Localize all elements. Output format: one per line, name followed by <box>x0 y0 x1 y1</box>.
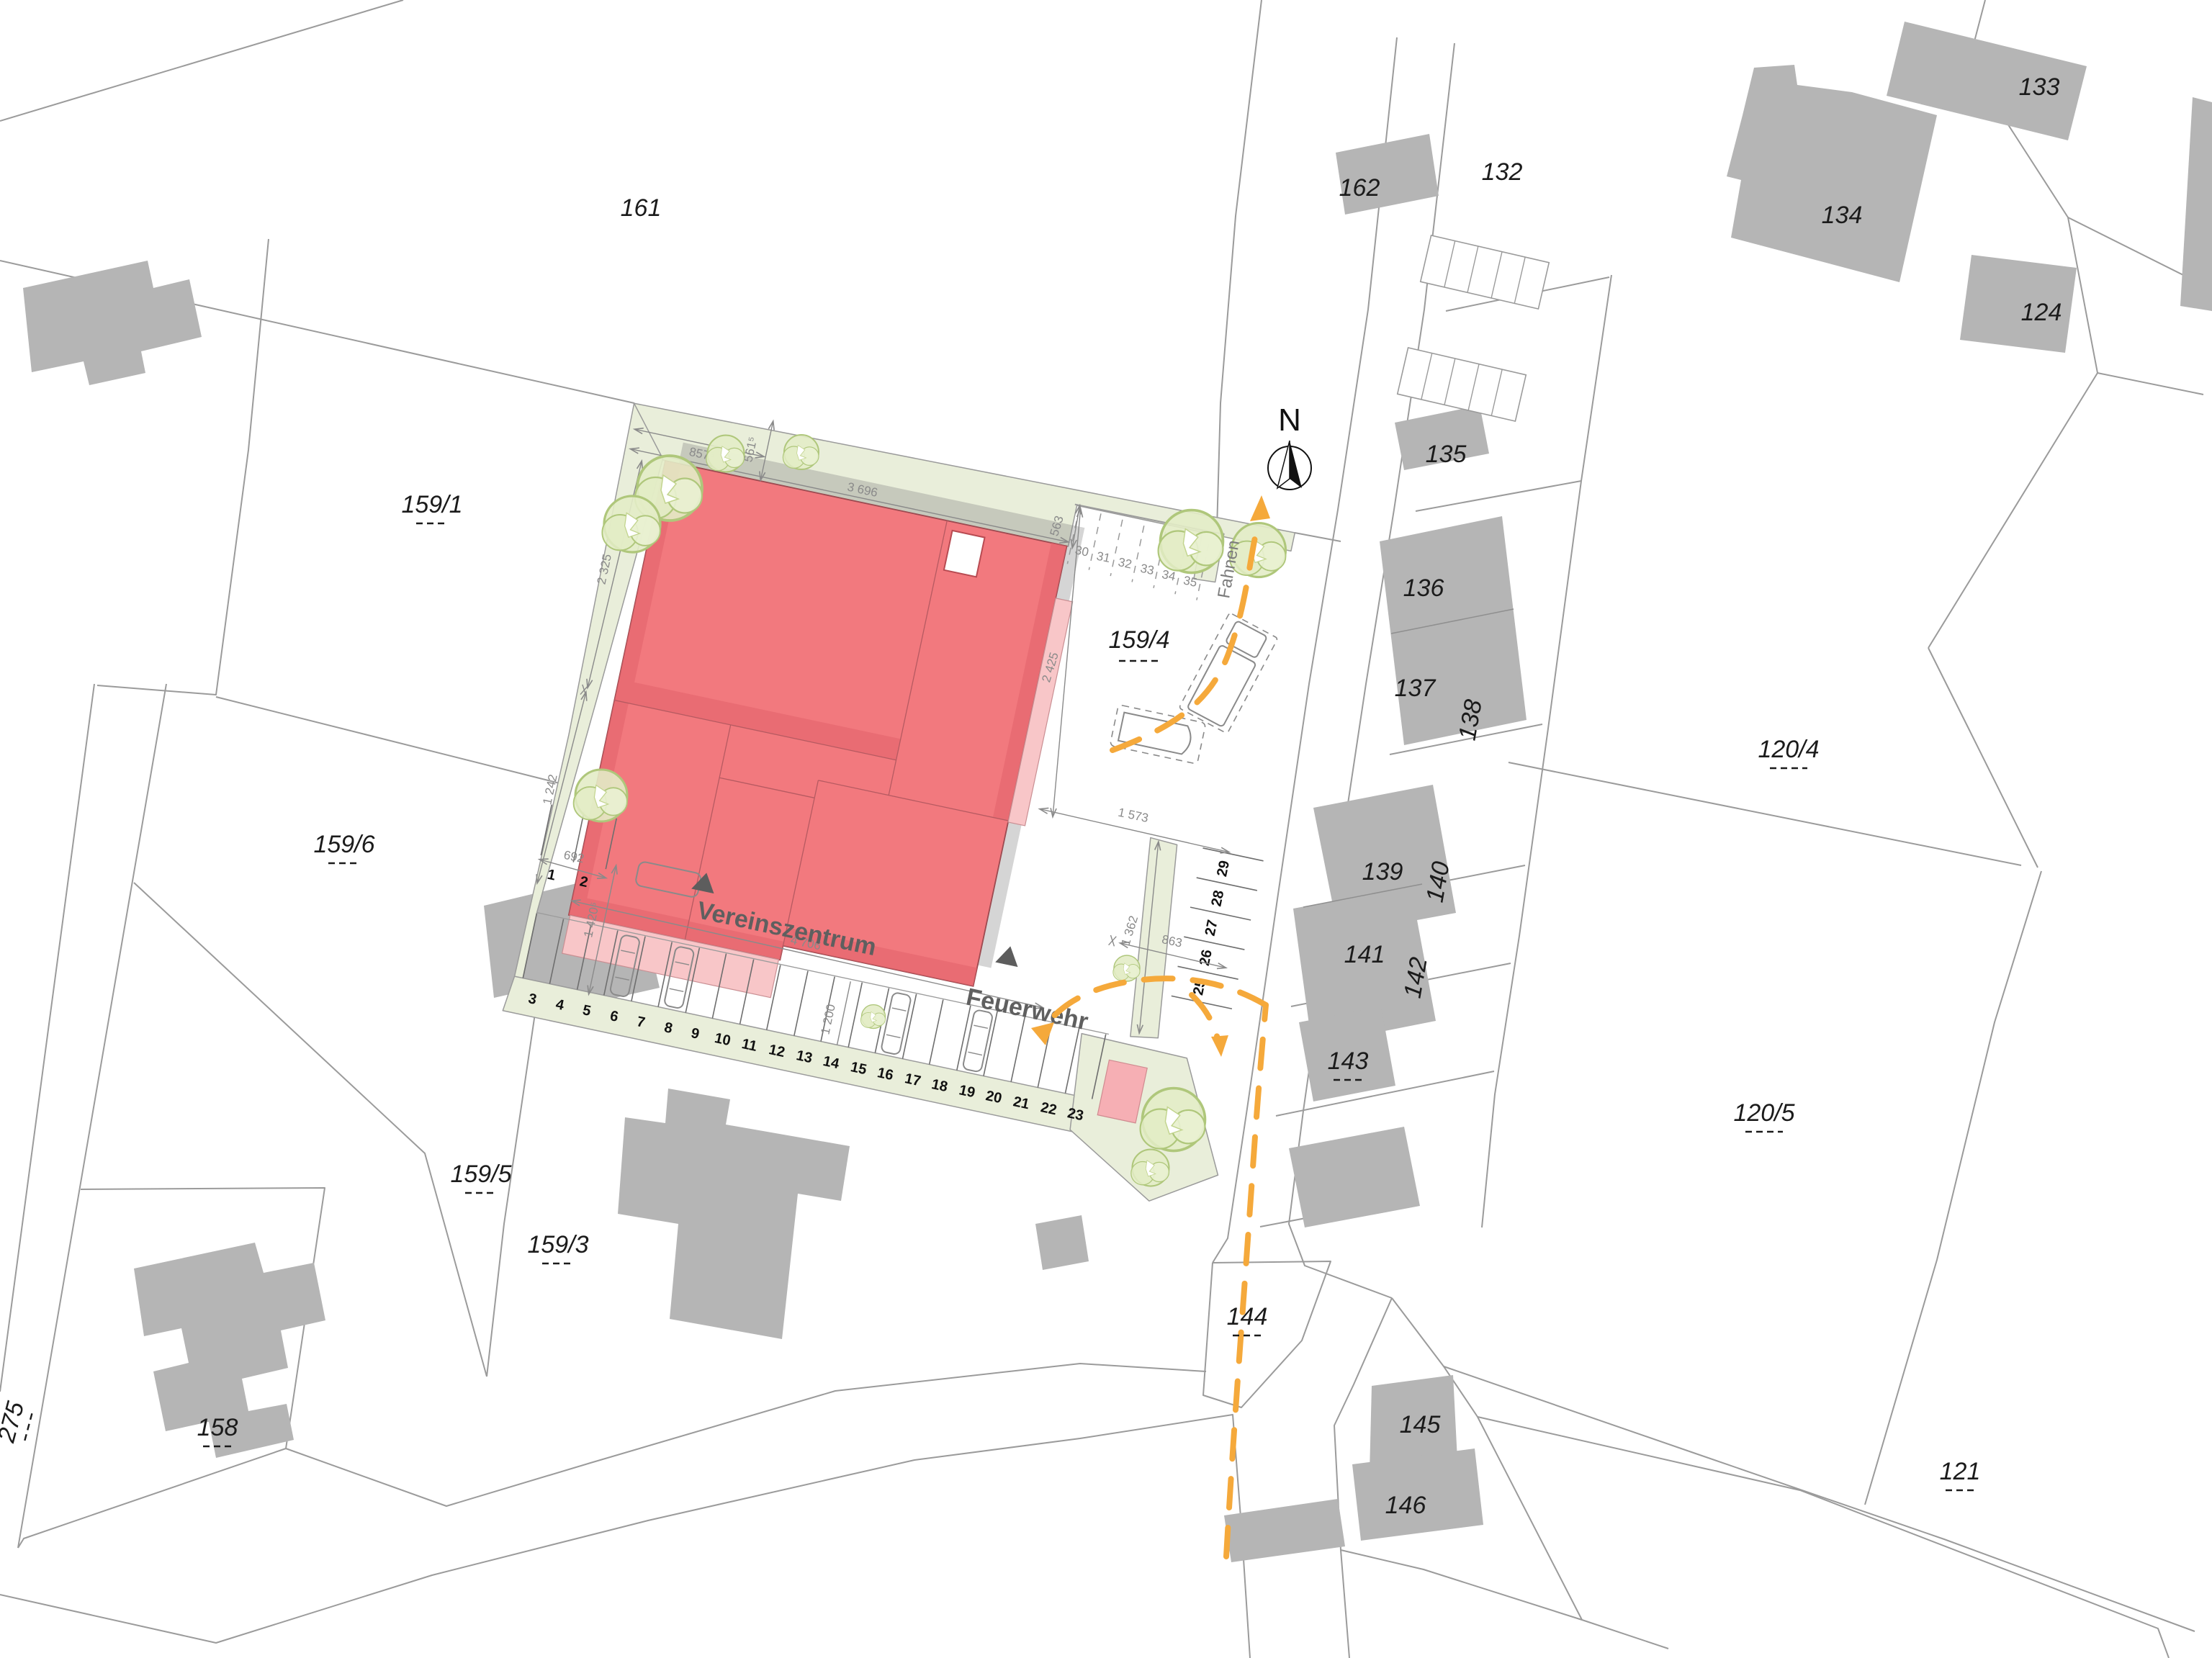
building-139-141 <box>1293 785 1456 1045</box>
stall-number: 11 <box>740 1036 758 1055</box>
existing-buildings <box>23 22 2212 1562</box>
parcel-label-137: 137 <box>1395 675 1437 702</box>
svg-text:137: 137 <box>1395 675 1437 702</box>
stall-number: 15 <box>849 1059 868 1078</box>
dim-label: 1 200 <box>818 1003 837 1036</box>
stall-number: 10 <box>713 1030 732 1049</box>
parcel-label-159-3: 159/3 <box>527 1231 588 1263</box>
svg-text:143: 143 <box>1328 1047 1369 1075</box>
parcel-label-133: 133 <box>2019 73 2060 101</box>
svg-text:161: 161 <box>621 194 662 222</box>
bus-outline <box>1110 705 1205 765</box>
parcel-label-124: 124 <box>2021 299 2062 326</box>
building-159-3 <box>618 1089 850 1339</box>
parcel-label-144: 144 <box>1227 1303 1268 1335</box>
svg-text:141: 141 <box>1344 941 1385 968</box>
truck-outline <box>1179 613 1278 734</box>
tree-icon <box>1159 510 1223 573</box>
svg-text:133: 133 <box>2019 73 2060 101</box>
svg-text:132: 132 <box>1482 158 1523 186</box>
svg-text:159/5: 159/5 <box>450 1161 511 1188</box>
stall-number: 29 <box>1214 859 1233 878</box>
parcel-label-121: 121 <box>1940 1458 1981 1490</box>
parcel-label-120-5: 120/5 <box>1733 1099 1794 1132</box>
parcel-label-141: 141 <box>1344 941 1385 968</box>
route-arrowhead-north <box>1250 495 1270 521</box>
entrance-arrow-feuerwehr <box>995 944 1022 967</box>
parcel-label-145: 145 <box>1400 1411 1441 1438</box>
stall-number: 20 <box>984 1088 1003 1107</box>
tree-icon <box>602 496 660 552</box>
stall-number: 28 <box>1208 889 1227 908</box>
stall-number: 31 <box>1095 549 1111 566</box>
svg-text:159/3: 159/3 <box>527 1231 588 1258</box>
building-161-west <box>23 261 202 385</box>
tree-icon <box>860 1005 885 1029</box>
parcel-label-275: 275 <box>0 1399 34 1447</box>
building-bottom-center <box>1224 1499 1345 1562</box>
stall-number: 35 <box>1182 573 1198 590</box>
tree-icon <box>1131 1150 1169 1186</box>
svg-text:135: 135 <box>1426 441 1467 468</box>
building-right-edge <box>2180 97 2212 311</box>
svg-text:162: 162 <box>1339 174 1380 202</box>
svg-text:120/4: 120/4 <box>1758 736 1819 763</box>
site-plan: 3 4 5 6 7 8 9 10 11 12 13 14 15 16 17 18… <box>0 0 2212 1658</box>
stall-number: 23 <box>1066 1105 1084 1124</box>
stall-number: 33 <box>1139 562 1155 578</box>
site-plan-canvas: 3 4 5 6 7 8 9 10 11 12 13 14 15 16 17 18… <box>0 0 2212 1658</box>
dim-label: 1 573 <box>1117 806 1150 825</box>
north-arrow: N <box>1268 402 1311 490</box>
parking-row-132-north <box>1421 235 1550 309</box>
parcel-label-161: 161 <box>621 194 662 222</box>
stall-number: 13 <box>795 1047 814 1066</box>
parcel-label-135: 135 <box>1426 441 1467 468</box>
building-below-143 <box>1289 1127 1420 1227</box>
svg-text:120/5: 120/5 <box>1733 1099 1794 1127</box>
parcel-label-132: 132 <box>1482 158 1523 186</box>
tree-icon <box>574 770 627 821</box>
parcel-label-159-4: 159/4 <box>1108 626 1169 661</box>
svg-text:121: 121 <box>1940 1458 1981 1485</box>
svg-text:158: 158 <box>197 1414 238 1441</box>
parcel-label-159-5: 159/5 <box>450 1161 511 1193</box>
car-icon <box>962 1009 993 1073</box>
svg-text:144: 144 <box>1227 1303 1268 1330</box>
parcel-label-159-6: 159/6 <box>313 831 374 863</box>
stall-number: 18 <box>930 1076 949 1095</box>
route-arrowhead-aisle <box>1031 1022 1054 1045</box>
parcel-label-159-1: 159/1 <box>401 491 462 523</box>
svg-text:159/1: 159/1 <box>401 491 462 518</box>
parcel-label-136: 136 <box>1403 575 1444 602</box>
stall-number: 27 <box>1202 919 1221 937</box>
tree-icon <box>1113 955 1140 981</box>
stall-number: 21 <box>1012 1094 1030 1112</box>
svg-text:159/4: 159/4 <box>1108 626 1169 654</box>
parcel-label-139: 139 <box>1362 858 1403 886</box>
svg-text:124: 124 <box>2021 299 2062 326</box>
parcel-label-162: 162 <box>1339 174 1380 202</box>
svg-text:134: 134 <box>1822 202 1863 229</box>
building-159-3-annex <box>1035 1215 1089 1270</box>
svg-text:145: 145 <box>1400 1411 1441 1438</box>
svg-text:139: 139 <box>1362 858 1403 886</box>
parcel-label-146: 146 <box>1385 1492 1426 1519</box>
stall-number: 12 <box>768 1042 786 1060</box>
parcel-label-120-4: 120/4 <box>1758 736 1819 768</box>
building-136-137 <box>1380 516 1527 745</box>
tree-icon <box>706 436 745 472</box>
svg-text:146: 146 <box>1385 1492 1426 1519</box>
stall-number: 22 <box>1039 1099 1058 1118</box>
parcel-label-134: 134 <box>1822 202 1863 229</box>
svg-text:159/6: 159/6 <box>313 831 374 858</box>
stall-number: 16 <box>876 1065 894 1083</box>
car-icon <box>881 992 912 1055</box>
stall-number: 19 <box>958 1082 976 1101</box>
north-label: N <box>1278 402 1301 438</box>
route-arrowhead-exit <box>1211 1035 1228 1057</box>
stall-number: 17 <box>903 1071 922 1089</box>
stall-number: 32 <box>1117 555 1133 572</box>
dim-label: 1 362 <box>1119 914 1141 947</box>
tree-icon <box>1141 1089 1205 1151</box>
svg-text:136: 136 <box>1403 575 1444 602</box>
tree-icon <box>783 435 819 469</box>
